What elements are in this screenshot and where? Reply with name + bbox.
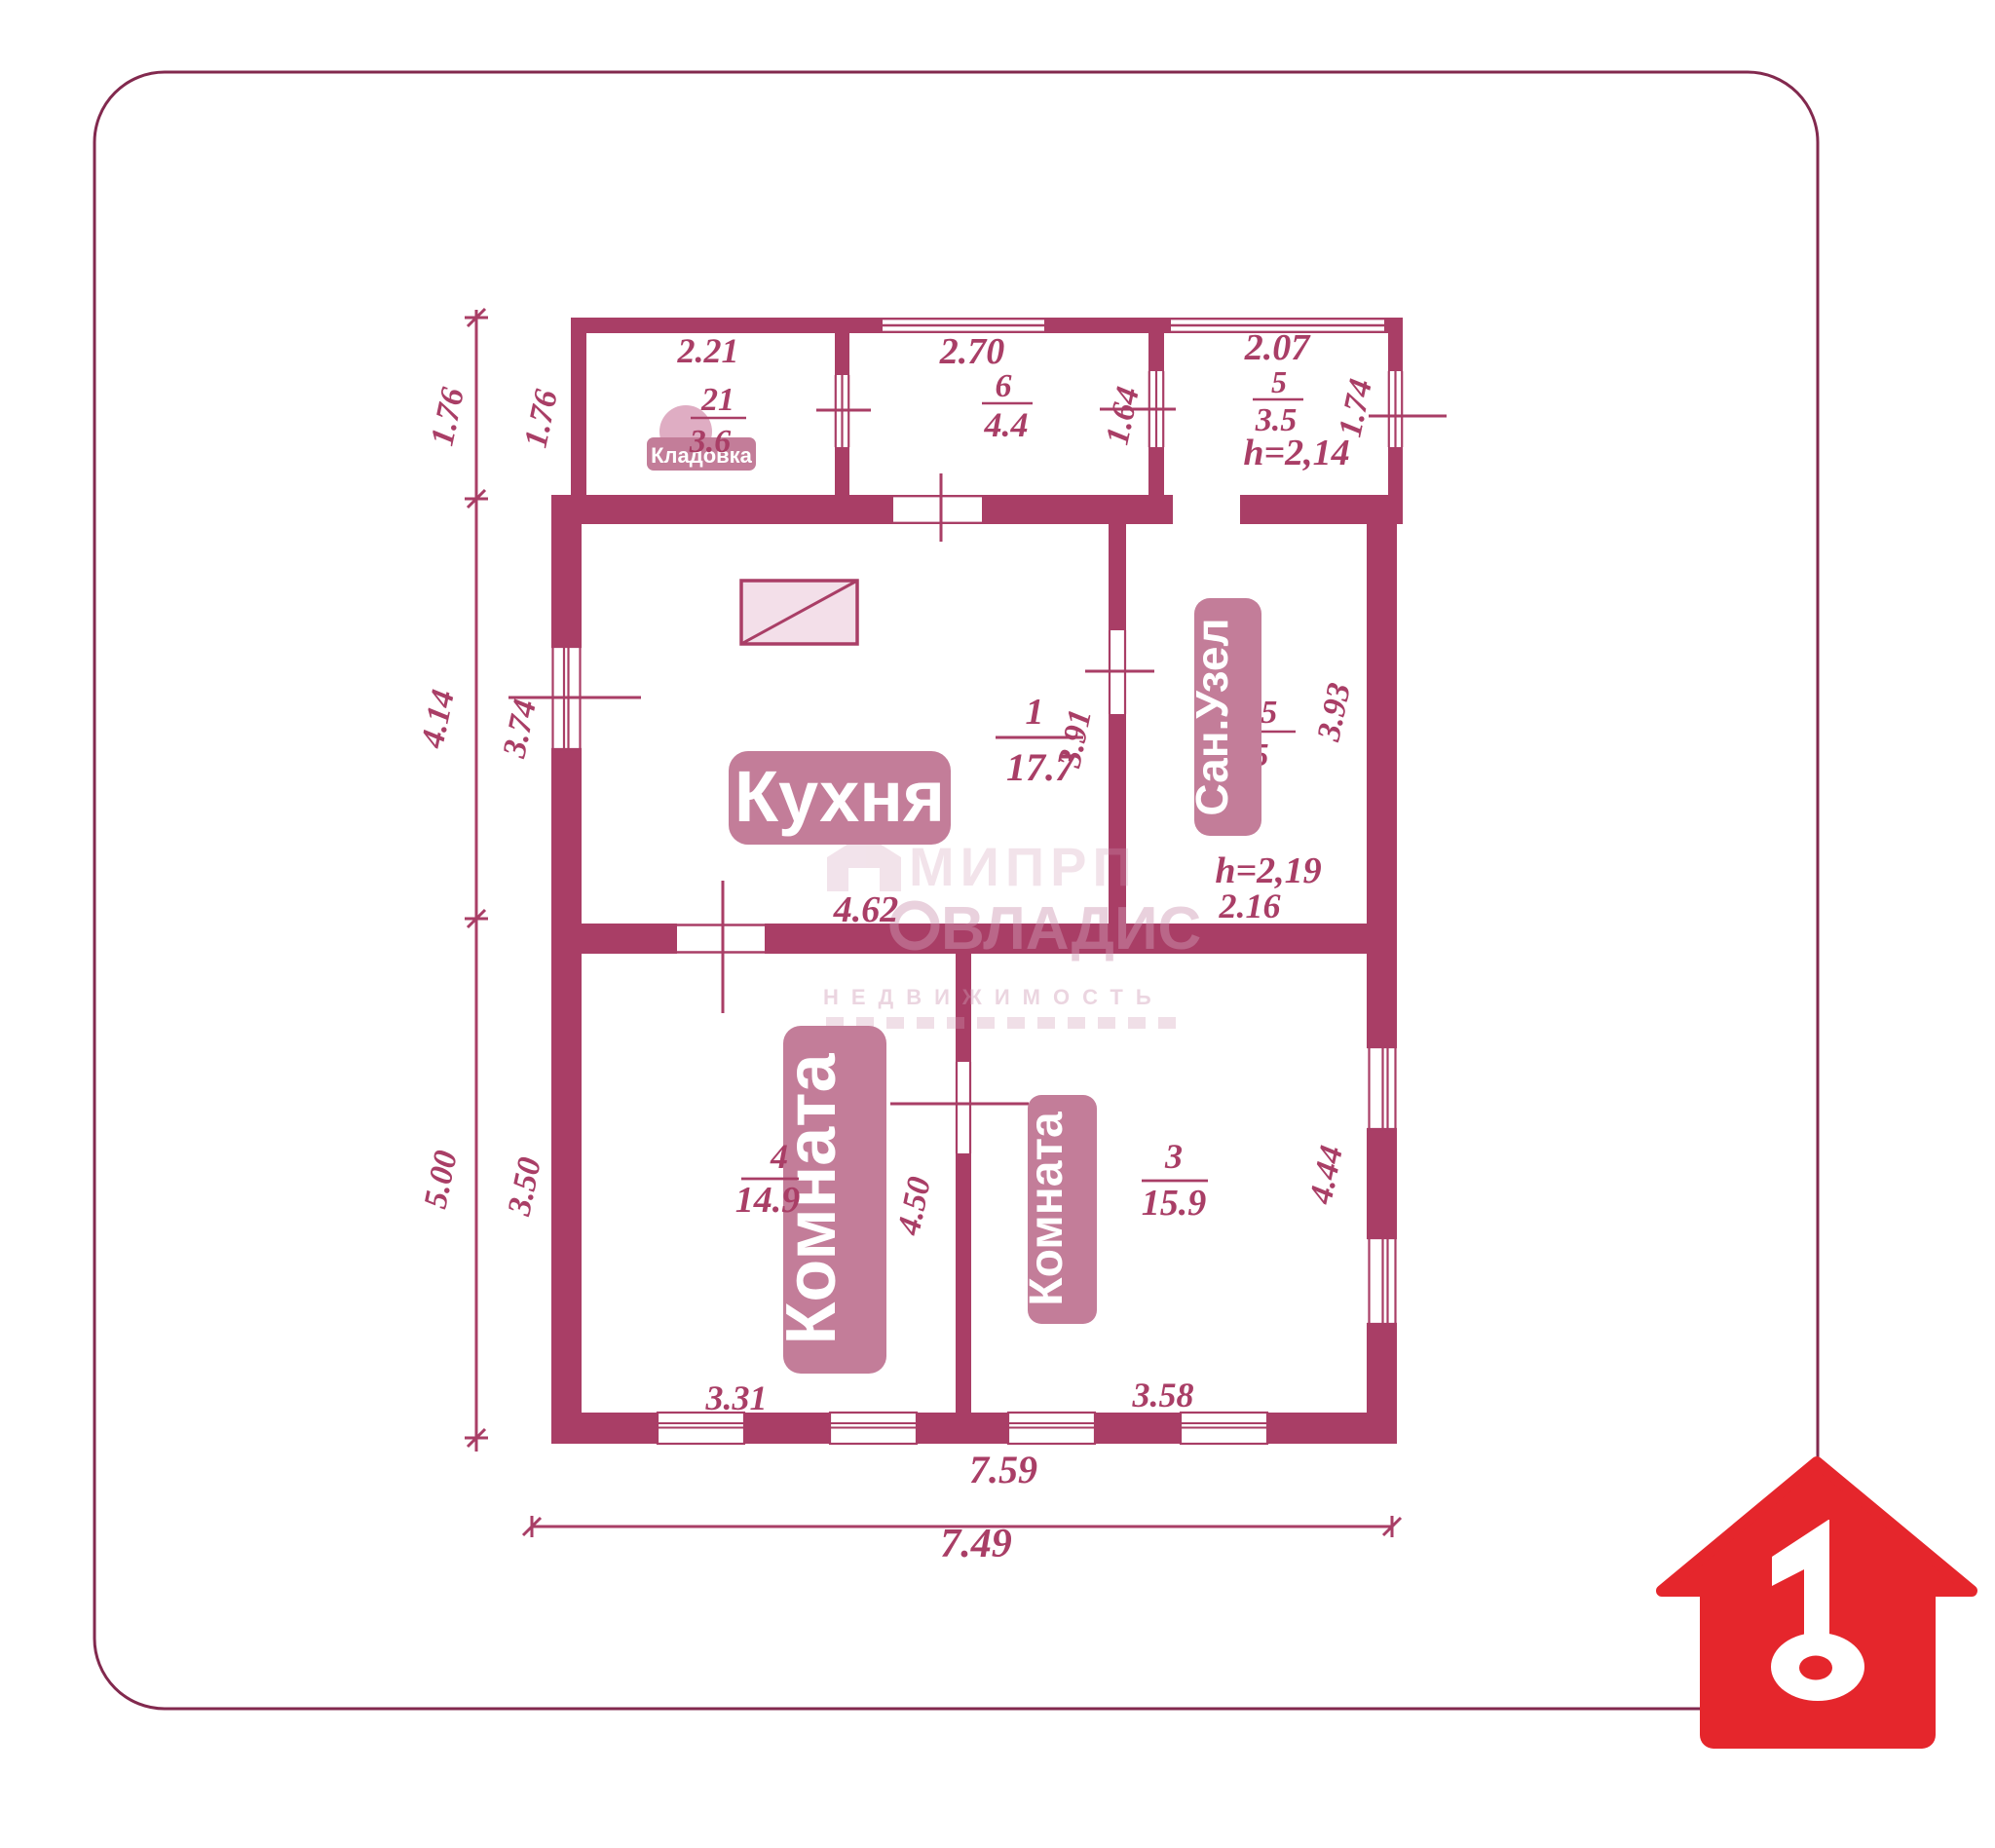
svg-text:7.59: 7.59 xyxy=(969,1448,1037,1491)
svg-text:ВЛАДИС: ВЛАДИС xyxy=(941,895,1201,962)
svg-text:4: 4 xyxy=(770,1137,788,1176)
svg-text:3: 3 xyxy=(1164,1137,1183,1176)
svg-text:Комната: Комната xyxy=(1021,1112,1073,1306)
svg-text:15.9: 15.9 xyxy=(1142,1183,1207,1224)
svg-text:Кухня: Кухня xyxy=(734,756,945,837)
svg-text:h=2,19: h=2,19 xyxy=(1215,850,1321,891)
svg-text:4.4: 4.4 xyxy=(984,405,1029,444)
svg-text:Сан.Узел: Сан.Узел xyxy=(1186,618,1237,815)
svg-text:2.21: 2.21 xyxy=(677,331,739,370)
svg-text:2.70: 2.70 xyxy=(939,331,1005,372)
svg-text:6: 6 xyxy=(996,368,1012,404)
svg-text:МИПРП: МИПРП xyxy=(909,836,1138,897)
svg-text:2.07: 2.07 xyxy=(1244,327,1312,368)
svg-text:21: 21 xyxy=(700,382,734,418)
svg-text:НЕДВИЖИМОСТЬ: НЕДВИЖИМОСТЬ xyxy=(823,985,1164,1009)
svg-text:2.16: 2.16 xyxy=(1219,886,1281,925)
svg-text:3.6: 3.6 xyxy=(689,424,732,460)
svg-text:3.58: 3.58 xyxy=(1132,1376,1194,1414)
svg-text:5: 5 xyxy=(1271,364,1287,399)
svg-text:7.49: 7.49 xyxy=(940,1522,1012,1566)
svg-text:h=2,14: h=2,14 xyxy=(1243,433,1349,473)
svg-text:3.31: 3.31 xyxy=(705,1378,768,1417)
svg-text:4.62: 4.62 xyxy=(833,889,899,930)
svg-text:14.9: 14.9 xyxy=(735,1180,801,1221)
svg-text:1: 1 xyxy=(1026,692,1044,733)
